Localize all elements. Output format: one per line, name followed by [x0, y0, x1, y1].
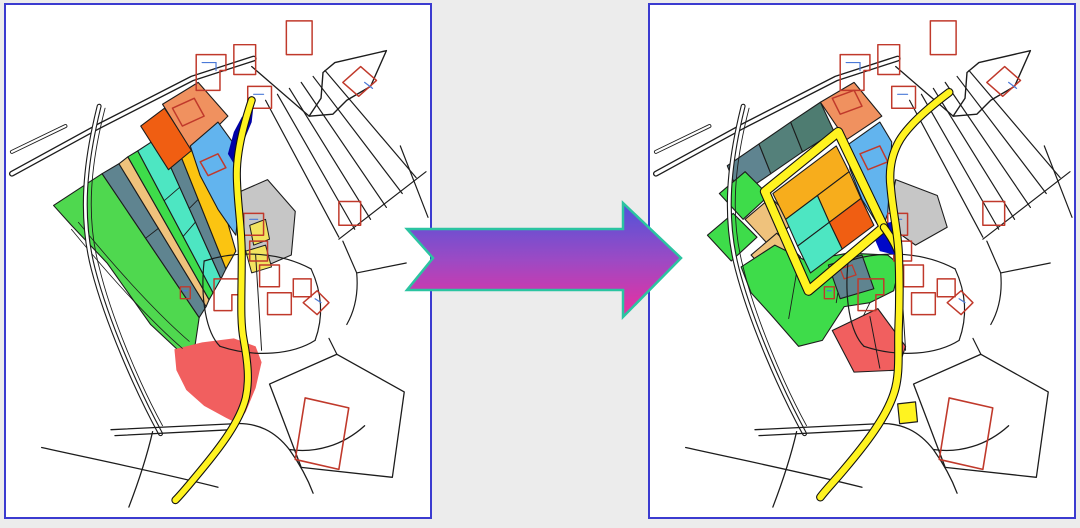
- cadastral-map-before: [6, 5, 430, 517]
- land-consolidation-diagram: [0, 0, 1080, 528]
- transformation-arrow: [407, 203, 681, 317]
- parcel-yellow-square: [898, 402, 918, 424]
- map-panel-before: [4, 3, 432, 519]
- cadastral-map-after: [650, 5, 1074, 517]
- map-panel-after: [648, 3, 1076, 519]
